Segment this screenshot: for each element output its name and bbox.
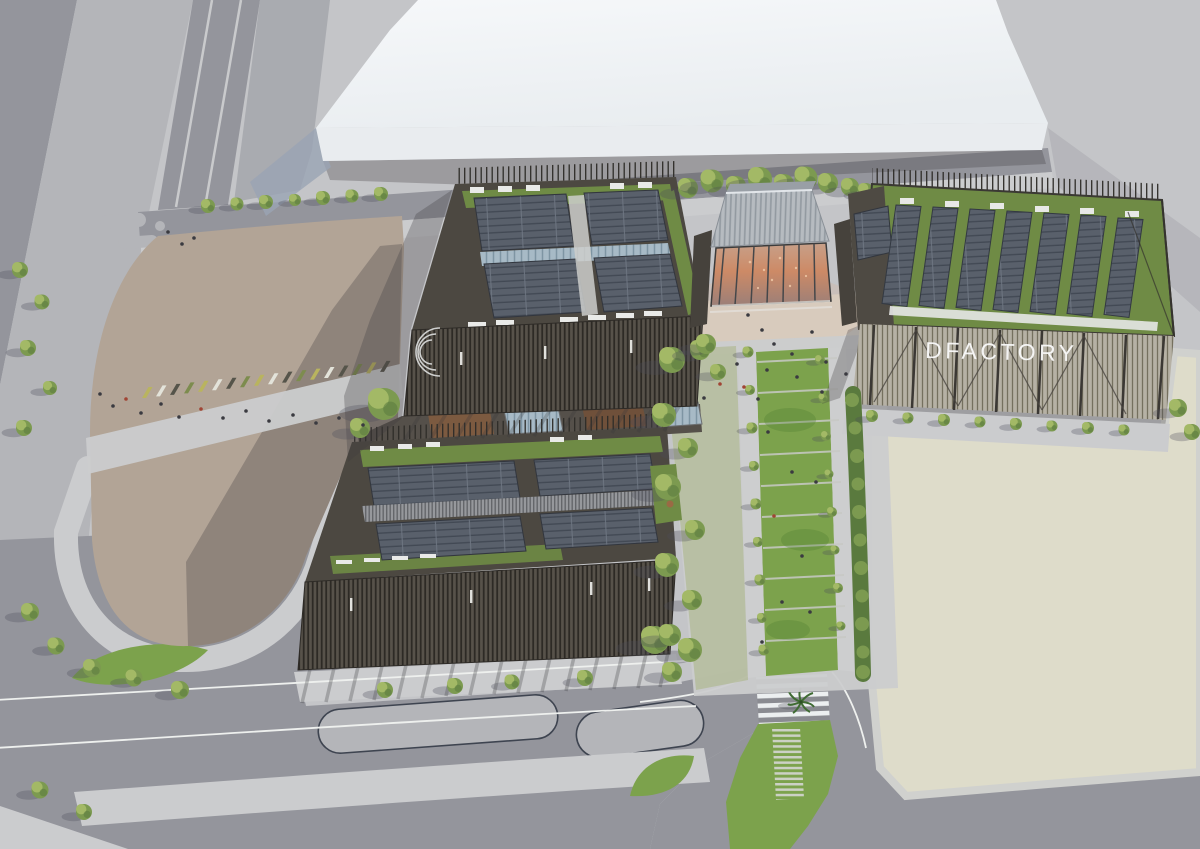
dfactory-building: DFACTORY (822, 168, 1174, 452)
solar-array (854, 206, 892, 260)
dfactory-sign: DFACTORY (925, 337, 1078, 366)
solar-array (540, 508, 658, 549)
gable-roof (711, 190, 829, 247)
warehouse-roof (316, 0, 1048, 128)
solar-array (474, 194, 574, 251)
solar-array (584, 190, 668, 245)
glass-facade-glowing (711, 243, 831, 306)
mini-roundabout (155, 221, 165, 231)
aerial-render-canvas: DFACTORY (0, 0, 1200, 849)
solar-array (484, 259, 586, 318)
solar-array (594, 254, 682, 312)
site-plan-svg: DFACTORY (0, 0, 1200, 849)
island-steps-path (772, 727, 804, 800)
